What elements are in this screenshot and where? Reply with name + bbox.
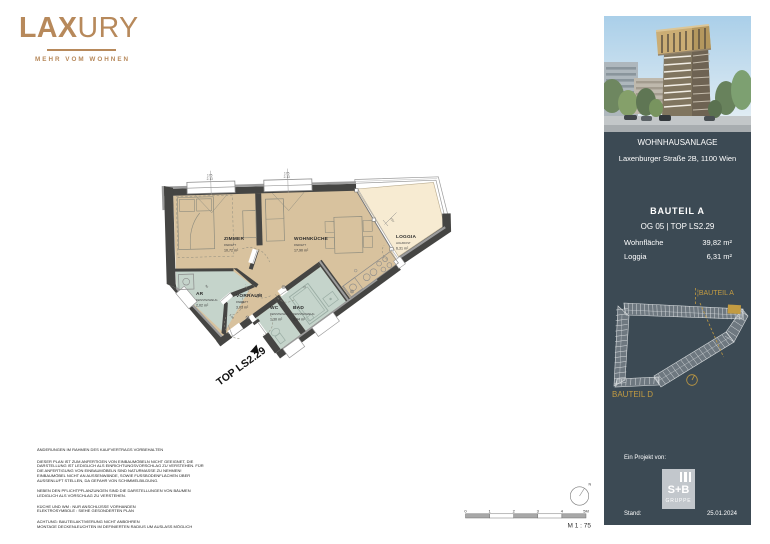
svg-text:6,31 m²: 6,31 m² [396, 247, 409, 251]
svg-text:10,72 m²: 10,72 m² [224, 249, 239, 253]
svg-text:LOGGIA: LOGGIA [396, 234, 416, 240]
svg-text:4: 4 [561, 508, 564, 513]
svg-text:ZIMMER: ZIMMER [224, 236, 244, 242]
svg-text:1: 1 [488, 508, 491, 513]
svg-text:PARKETT: PARKETT [224, 243, 237, 247]
svg-text:TOP LS2.29: TOP LS2.29 [214, 345, 268, 389]
svg-text:BAD: BAD [293, 305, 304, 311]
svg-text:PARKETT: PARKETT [294, 243, 307, 247]
svg-text:1752.13: 1752.13 [207, 174, 213, 181]
svg-text:0: 0 [464, 508, 467, 513]
svg-text:FEINSTEINZEUG: FEINSTEINZEUG [196, 298, 218, 302]
svg-text:5M: 5M [583, 508, 589, 513]
svg-text:2,02 m²: 2,02 m² [196, 304, 209, 308]
svg-text:M 1 : 75: M 1 : 75 [568, 523, 592, 530]
svg-text:FEINSTEINZEUG: FEINSTEINZEUG [270, 312, 292, 316]
svg-text:17,90 m²: 17,90 m² [294, 249, 309, 253]
svg-text:N: N [589, 483, 592, 487]
svg-text:FEINSTEINZEUG: FEINSTEINZEUG [293, 312, 315, 316]
svg-text:1752.13: 1752.13 [284, 172, 290, 179]
svg-text:HOLZROST: HOLZROST [396, 241, 411, 245]
svg-text:3,03 m²: 3,03 m² [236, 306, 249, 310]
svg-text:3,94 m²: 3,94 m² [293, 318, 306, 322]
svg-text:3: 3 [537, 508, 540, 513]
svg-text:WC: WC [270, 305, 279, 311]
svg-text:1,30 m²: 1,30 m² [270, 318, 283, 322]
svg-text:WOHNKÜCHE: WOHNKÜCHE [294, 235, 329, 242]
svg-text:AR: AR [196, 291, 204, 297]
svg-text:2: 2 [513, 508, 516, 513]
